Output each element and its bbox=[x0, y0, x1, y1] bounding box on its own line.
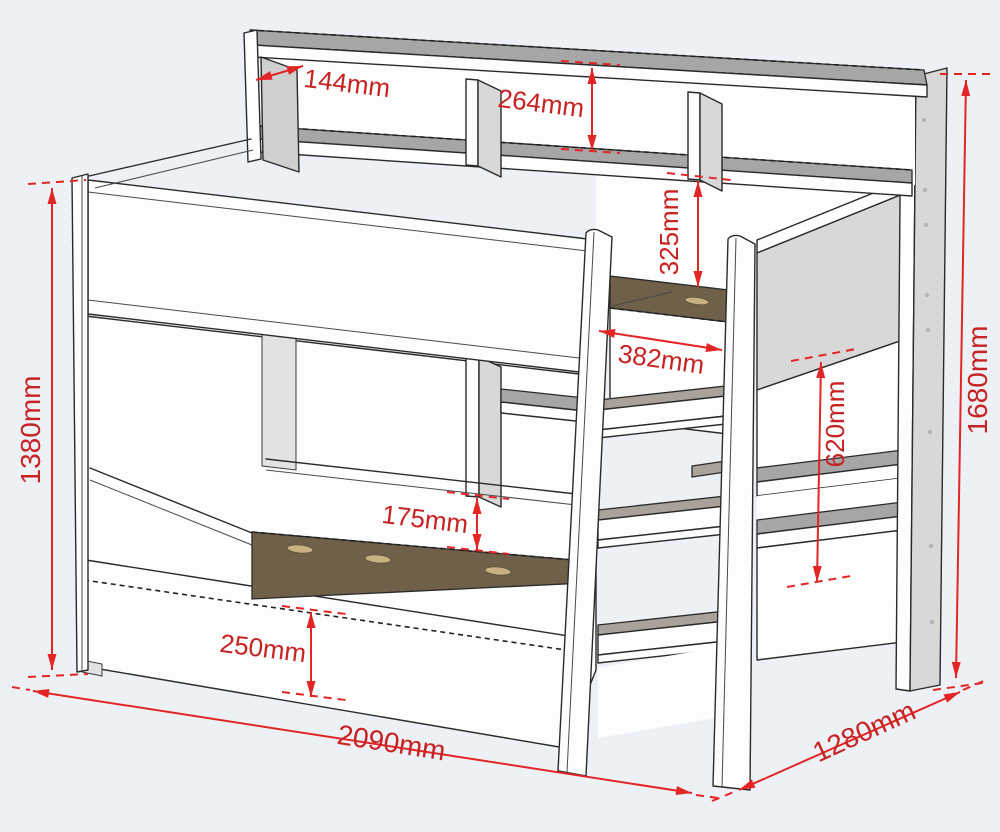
dim-label-2090: 2090mm bbox=[335, 719, 447, 766]
dim-label-1680: 1680mm bbox=[962, 326, 993, 435]
dim-depth: 1280mm bbox=[712, 679, 988, 801]
bed-structure bbox=[72, 30, 947, 790]
shelf-divider bbox=[466, 79, 478, 166]
dim-label-1380: 1380mm bbox=[15, 376, 46, 485]
lower-foot-board bbox=[757, 530, 903, 660]
ladder-step bbox=[598, 496, 726, 548]
shelf-divider bbox=[688, 92, 700, 180]
dim-label-325: 325mm bbox=[654, 189, 684, 276]
lower-divider bbox=[466, 356, 479, 497]
headboard-shelf bbox=[244, 30, 927, 196]
dim-label-1280: 1280mm bbox=[808, 695, 920, 768]
ladder-steps bbox=[598, 386, 726, 738]
lower-back-post bbox=[262, 333, 296, 470]
bunk-bed-diagram: 1380mm 1680mm 2090mm 1280mm 144mm bbox=[0, 0, 1000, 832]
dim-label-620: 620mm bbox=[820, 381, 850, 468]
lower-bunk-left-section bbox=[82, 316, 596, 748]
